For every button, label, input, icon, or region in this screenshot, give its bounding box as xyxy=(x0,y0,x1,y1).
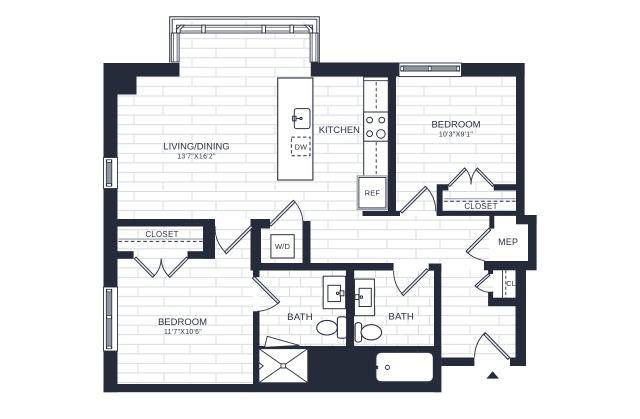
svg-text:10'3"X9'1": 10'3"X9'1" xyxy=(439,132,474,139)
svg-text:CLOSET: CLOSET xyxy=(145,230,178,239)
svg-text:CLOSET: CLOSET xyxy=(464,202,497,211)
svg-text:KITCHEN: KITCHEN xyxy=(319,124,360,135)
svg-text:MEP: MEP xyxy=(498,237,518,247)
svg-text:REF: REF xyxy=(365,188,381,197)
svg-text:LIVING/DINING: LIVING/DINING xyxy=(163,140,229,151)
svg-text:13'7"X16'2": 13'7"X16'2" xyxy=(177,154,216,161)
svg-text:BATH: BATH xyxy=(287,312,313,323)
svg-text:11'7"X10'6": 11'7"X10'6" xyxy=(164,329,202,336)
svg-text:W/D: W/D xyxy=(275,242,291,251)
svg-text:BEDROOM: BEDROOM xyxy=(158,317,207,328)
svg-text:CL: CL xyxy=(506,279,516,288)
svg-text:BATH: BATH xyxy=(388,311,414,322)
svg-text:BEDROOM: BEDROOM xyxy=(431,119,480,130)
svg-text:DW: DW xyxy=(295,142,308,151)
